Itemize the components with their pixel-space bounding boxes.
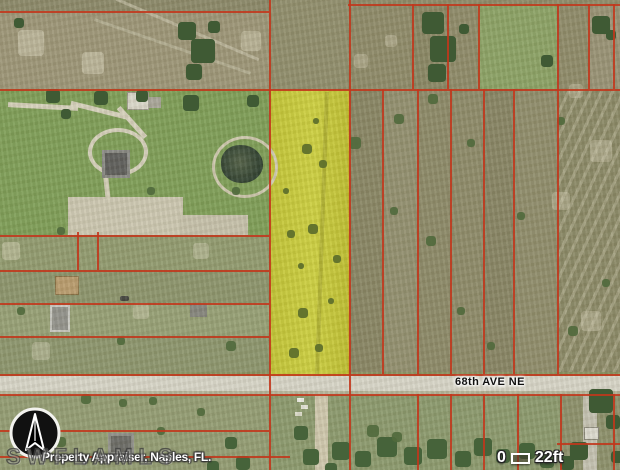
field-right-mid-s2	[382, 89, 417, 374]
parcel-line	[450, 394, 452, 470]
parcel-line	[97, 232, 99, 270]
aerial-parcel-map[interactable]: 68th AVE NE 0 22ft Property Appraiser, N…	[0, 0, 620, 470]
parcel-line	[0, 394, 620, 396]
parcel-line	[0, 303, 269, 305]
trees-highlight-parcel	[0, 0, 2, 2]
field-left-strip-3	[0, 303, 269, 336]
field-left-strip-2	[0, 270, 269, 303]
parcel-line	[382, 89, 384, 374]
field-right-top-green	[478, 4, 557, 89]
parcel-line	[557, 4, 559, 89]
field-right-top-sub1	[412, 4, 447, 89]
estate-shed-2	[148, 97, 161, 108]
road-name-label: 68th AVE NE	[455, 376, 525, 388]
parcel-line	[450, 89, 452, 374]
parcel-line	[613, 4, 615, 89]
parcel-line	[77, 232, 79, 270]
field-center-col-top	[269, 0, 350, 89]
parcel-line	[417, 89, 419, 374]
parcel-line	[412, 4, 414, 89]
scale-end-label: 22ft	[535, 449, 563, 467]
parcel-line	[348, 4, 620, 6]
strip-building-small	[190, 304, 207, 317]
estate-house	[102, 150, 130, 178]
parcel-line	[349, 0, 351, 470]
parcel-line	[0, 374, 620, 376]
parcel-line	[483, 89, 485, 374]
field-right-mid-s3	[450, 89, 483, 374]
estate-shed-1	[127, 92, 149, 110]
parcel-line	[478, 4, 480, 89]
field-right-mid-s6	[557, 89, 620, 374]
watermark-text: SWFLAMLS	[6, 444, 179, 470]
field-right-top-sub2	[588, 4, 620, 89]
driveway-cars	[297, 398, 304, 402]
strip-building-gray	[50, 305, 70, 332]
parcel-line	[557, 89, 559, 374]
field-top-left	[0, 11, 269, 89]
scale-bar: 0 22ft	[497, 449, 563, 467]
parcel-line	[483, 394, 485, 470]
parcel-line	[513, 89, 515, 374]
scale-segment-icon	[511, 453, 530, 464]
strip-car	[120, 296, 129, 301]
parcel-line	[0, 270, 269, 272]
parcel-line	[0, 89, 620, 91]
parcel-line	[0, 11, 269, 13]
right-small-structure	[584, 427, 599, 440]
parcel-line	[0, 336, 269, 338]
field-right-mid-s1	[350, 89, 382, 374]
field-right-mid-s5	[513, 89, 557, 374]
pond	[221, 145, 263, 183]
strip-shed-tan	[55, 276, 79, 295]
field-right-mid-s4	[483, 89, 513, 374]
scale-start-label: 0	[497, 449, 506, 467]
parcel-line	[613, 394, 615, 470]
parcel-line	[417, 394, 419, 470]
parcel-line	[447, 4, 449, 89]
highlighted-parcel[interactable]	[270, 90, 349, 376]
parcel-line	[269, 0, 271, 470]
parcel-line	[0, 235, 269, 237]
road-surface	[0, 376, 620, 391]
paved-area	[68, 197, 183, 235]
parcel-line	[588, 4, 590, 89]
dirt-driveway	[315, 394, 328, 470]
paved-area-ext	[180, 215, 248, 235]
parcel-line	[557, 443, 620, 445]
field-left-strip-4	[0, 336, 269, 374]
field-left-strip-1	[0, 235, 269, 270]
